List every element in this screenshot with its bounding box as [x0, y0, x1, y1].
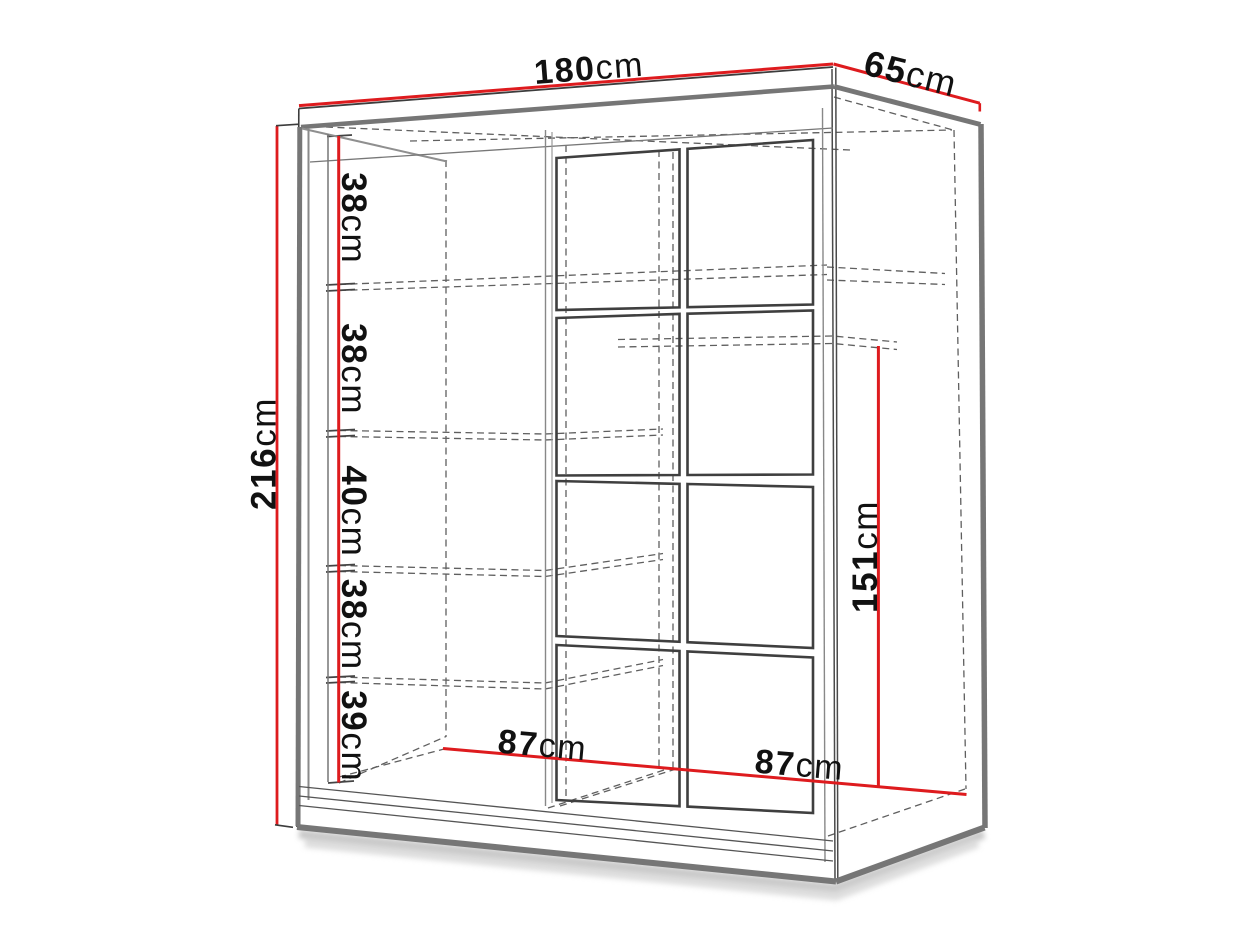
- svg-text:38cm: 38cm: [334, 323, 373, 415]
- svg-text:151cm: 151cm: [846, 500, 885, 613]
- svg-text:38cm: 38cm: [334, 172, 373, 264]
- svg-text:38cm: 38cm: [334, 579, 373, 671]
- svg-text:40cm: 40cm: [334, 465, 373, 557]
- svg-text:39cm: 39cm: [334, 690, 373, 782]
- svg-text:216cm: 216cm: [244, 397, 283, 510]
- svg-text:87cm: 87cm: [496, 723, 589, 769]
- svg-text:87cm: 87cm: [753, 743, 845, 788]
